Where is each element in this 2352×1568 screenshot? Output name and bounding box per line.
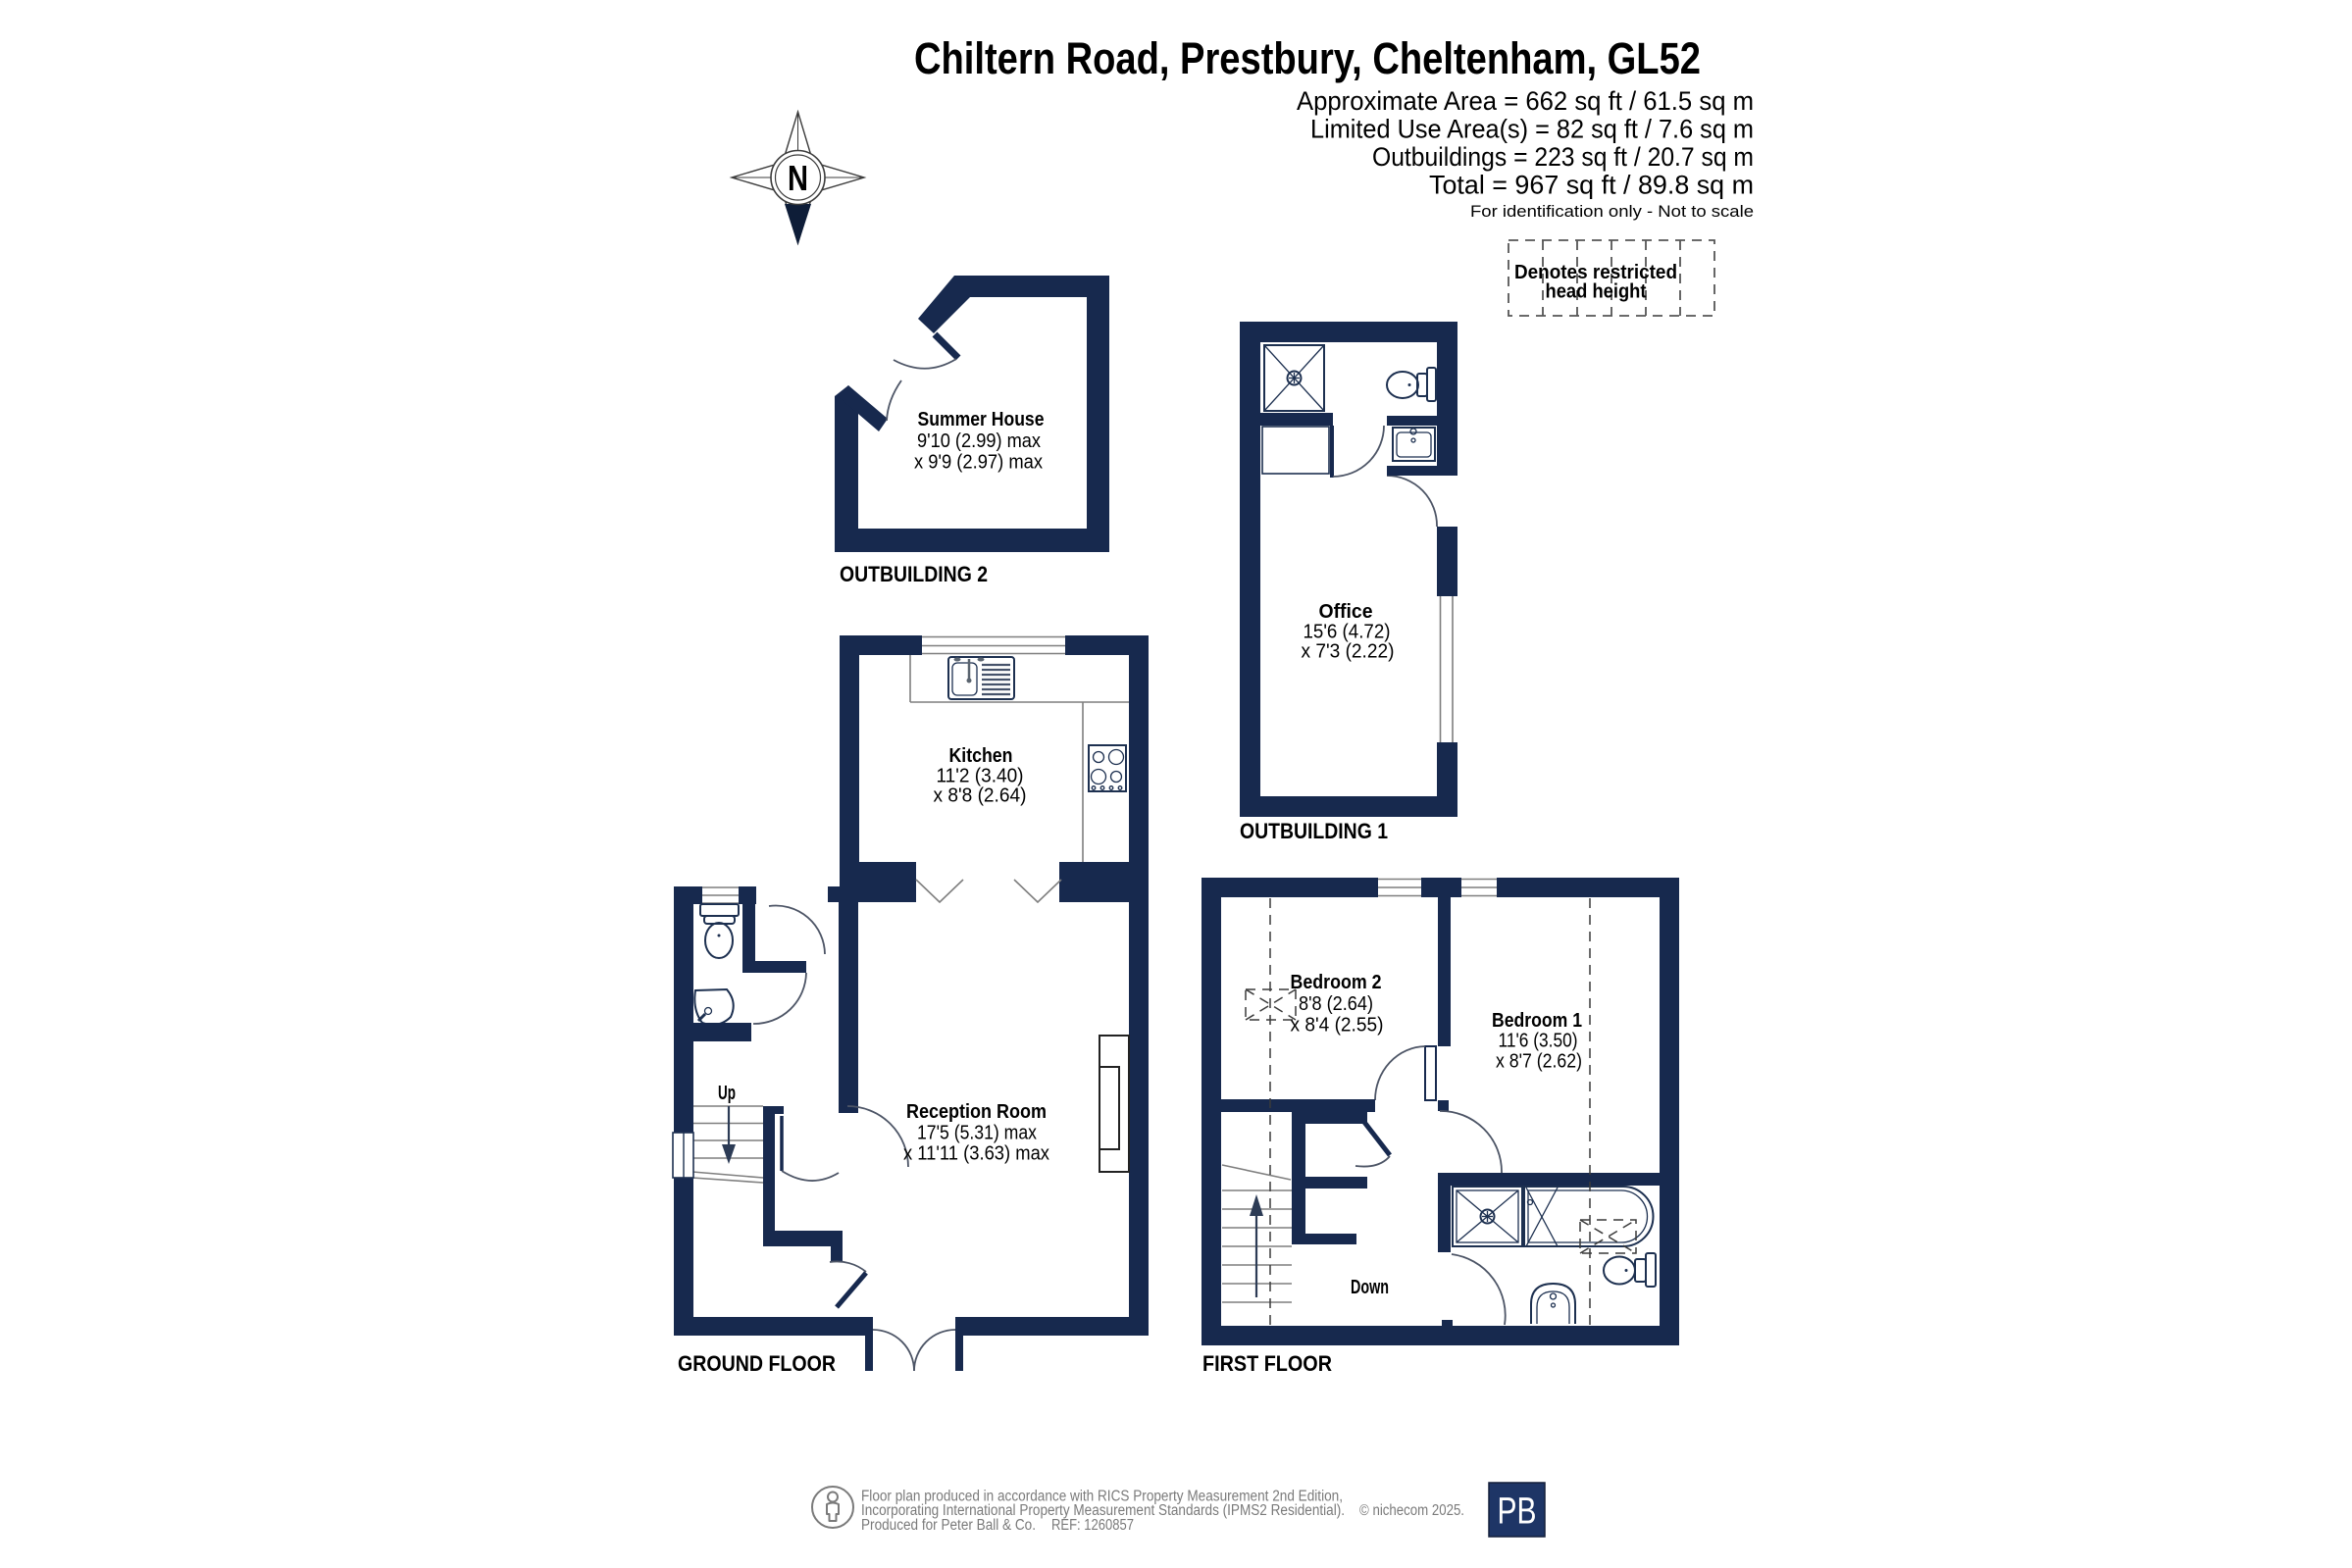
svg-text:8'8 (2.64): 8'8 (2.64) (1299, 993, 1373, 1015)
svg-text:x 8'7 (2.62): x 8'7 (2.62) (1496, 1051, 1582, 1073)
svg-text:Limited Use Area(s) = 82 sq ft: Limited Use Area(s) = 82 sq ft / 7.6 sq … (1310, 115, 1754, 144)
svg-text:GROUND FLOOR: GROUND FLOOR (678, 1351, 836, 1376)
svg-text:Reception Room: Reception Room (906, 1101, 1047, 1123)
svg-text:x 11'11 (3.63) max: x 11'11 (3.63) max (903, 1143, 1049, 1165)
svg-text:FIRST FLOOR: FIRST FLOOR (1202, 1351, 1332, 1376)
svg-text:head height: head height (1546, 281, 1647, 303)
svg-text:PB: PB (1498, 1492, 1537, 1533)
svg-text:17'5 (5.31) max: 17'5 (5.31) max (917, 1123, 1037, 1144)
svg-text:x 9'9 (2.97) max: x 9'9 (2.97) max (914, 452, 1043, 474)
svg-text:Outbuildings = 223 sq ft / 20.: Outbuildings = 223 sq ft / 20.7 sq m (1372, 142, 1754, 172)
svg-text:11'6 (3.50): 11'6 (3.50) (1499, 1031, 1578, 1052)
svg-text:Office: Office (1319, 601, 1373, 623)
svg-text:Down: Down (1351, 1277, 1389, 1298)
svg-text:© nichecom 2025.: © nichecom 2025. (1359, 1502, 1464, 1519)
svg-text:Bedroom 1: Bedroom 1 (1492, 1010, 1582, 1032)
svg-text:Kitchen: Kitchen (949, 745, 1013, 767)
svg-text:N: N (788, 158, 808, 198)
svg-text:9'10 (2.99) max: 9'10 (2.99) max (917, 430, 1041, 452)
svg-text:Chiltern Road, Prestbury, Chel: Chiltern Road, Prestbury, Cheltenham, GL… (914, 33, 1701, 83)
svg-text:11'2 (3.40): 11'2 (3.40) (937, 766, 1024, 787)
svg-text:Up: Up (718, 1083, 736, 1104)
svg-text:15'6 (4.72): 15'6 (4.72) (1304, 622, 1391, 643)
svg-text:x 8'8 (2.64): x 8'8 (2.64) (934, 785, 1027, 807)
svg-text:OUTBUILDING 2: OUTBUILDING 2 (840, 562, 988, 586)
svg-text:x 7'3 (2.22): x 7'3 (2.22) (1302, 641, 1395, 663)
svg-text:x 8'4 (2.55): x 8'4 (2.55) (1291, 1015, 1384, 1037)
svg-text:Produced for Peter Ball & Co.: Produced for Peter Ball & Co. (861, 1517, 1036, 1534)
svg-text:OUTBUILDING 1: OUTBUILDING 1 (1240, 819, 1388, 843)
svg-text:Summer House: Summer House (918, 409, 1045, 430)
svg-text:For identification only - Not: For identification only - Not to scale (1470, 202, 1754, 221)
svg-text:Total = 967 sq ft / 89.8 sq m: Total = 967 sq ft / 89.8 sq m (1429, 171, 1754, 200)
svg-text:REF: 1260857: REF: 1260857 (1051, 1517, 1134, 1534)
svg-text:Approximate Area = 662 sq ft /: Approximate Area = 662 sq ft / 61.5 sq m (1297, 86, 1754, 116)
svg-text:Bedroom 2: Bedroom 2 (1291, 972, 1382, 993)
